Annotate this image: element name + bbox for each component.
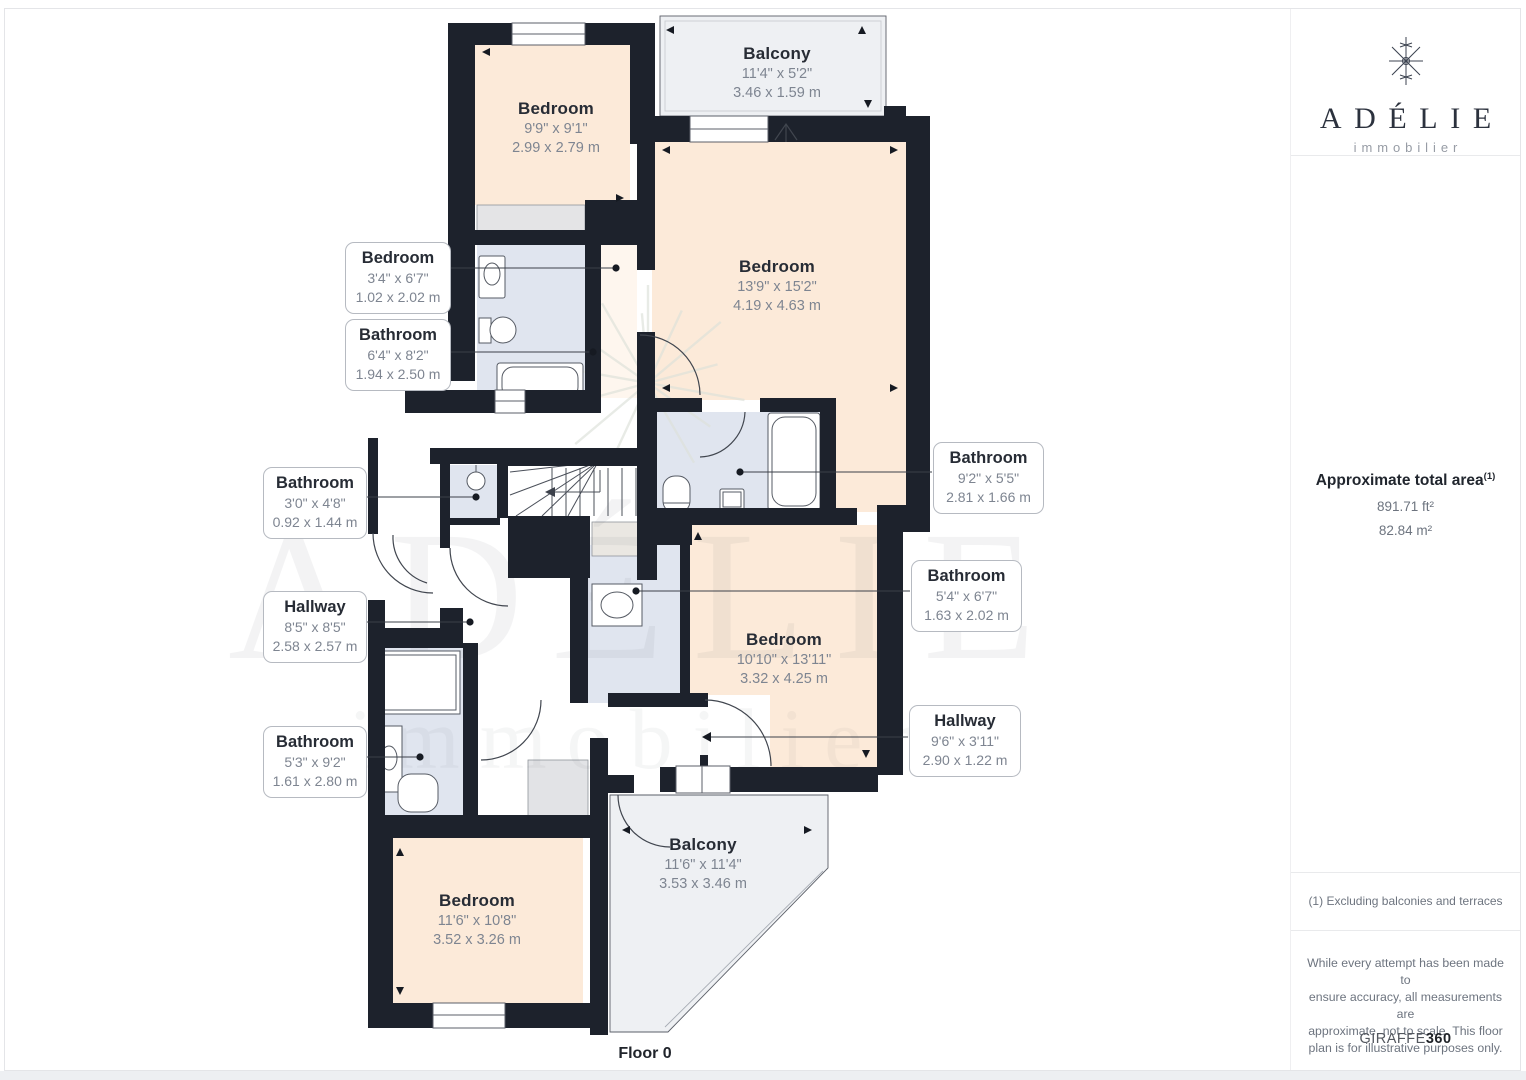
callout-dims-metric: 1.94 x 2.50 m <box>352 365 444 383</box>
callout-dims-metric: 2.81 x 1.66 m <box>940 488 1037 506</box>
callout-dims-metric: 2.90 x 1.22 m <box>916 751 1014 769</box>
floor-plan: ADÉLIE immobilier <box>0 0 1290 1080</box>
frame-top <box>4 8 1520 9</box>
callout-name: Bedroom <box>352 249 444 268</box>
callout-dims-imperial: 3'4" x 6'7" <box>352 269 444 287</box>
callout-hallway-85: Hallway 8'5" x 8'5" 2.58 x 2.57 m <box>263 591 367 663</box>
callout-dims-imperial: 5'3" x 9'2" <box>270 753 360 771</box>
callout-dims-imperial: 9'6" x 3'11" <box>916 732 1014 750</box>
total-area-block: Approximate total area(1) 891.71 ft² 82.… <box>1291 471 1520 538</box>
callout-name: Hallway <box>270 598 360 617</box>
callout-dims-metric: 1.61 x 2.80 m <box>270 772 360 790</box>
callout-dims-metric: 0.92 x 1.44 m <box>270 513 360 531</box>
callout-name: Bathroom <box>352 326 444 345</box>
sidebar-divider <box>1291 155 1520 156</box>
bottom-strip <box>0 1071 1526 1080</box>
callout-name: Bathroom <box>270 733 360 752</box>
snowflake-icon <box>1383 35 1429 87</box>
total-area-imperial: 891.71 ft² <box>1291 499 1520 514</box>
callout-hallway-96: Hallway 9'6" x 3'11" 2.90 x 1.22 m <box>909 705 1021 777</box>
callout-dims-metric: 1.02 x 2.02 m <box>352 288 444 306</box>
callout-dims-imperial: 3'0" x 4'8" <box>270 494 360 512</box>
info-sidebar: ADÉLIE immobilier Approximate total area… <box>1291 9 1520 1070</box>
callout-dims-imperial: 9'2" x 5'5" <box>940 469 1037 487</box>
floorplan-graphic: ADÉLIE immobilier <box>0 0 1290 1080</box>
callout-name: Bathroom <box>918 567 1015 586</box>
callout-dims-metric: 1.63 x 2.02 m <box>918 606 1015 624</box>
total-area-title-text: Approximate total area <box>1316 472 1484 489</box>
total-area-title: Approximate total area(1) <box>1291 471 1520 490</box>
giraffe360-name: GIRAFFE <box>1359 1031 1425 1047</box>
brand-name: ADÉLIE <box>1291 102 1520 136</box>
floor-label: Floor 0 <box>595 1045 695 1063</box>
footnote: (1) Excluding balconies and terraces <box>1291 894 1520 908</box>
total-area-metric: 82.84 m² <box>1291 523 1520 538</box>
giraffe360-suffix: 360 <box>1426 1031 1452 1047</box>
frame-left <box>4 8 5 1071</box>
callout-name: Bathroom <box>940 449 1037 468</box>
callout-name: Hallway <box>916 712 1014 731</box>
brand-block: ADÉLIE immobilier <box>1291 35 1520 155</box>
sidebar-divider <box>1291 872 1520 873</box>
callout-dims-imperial: 8'5" x 8'5" <box>270 618 360 636</box>
callout-dims-metric: 2.58 x 2.57 m <box>270 637 360 655</box>
sidebar-divider <box>1291 930 1520 931</box>
giraffe360-credit: GIRAFFE360 <box>1291 1031 1520 1047</box>
total-area-footnote-ref: (1) <box>1484 471 1496 482</box>
brand-tagline: immobilier <box>1291 140 1520 155</box>
callout-bathroom-54: Bathroom 5'4" x 6'7" 1.63 x 2.02 m <box>911 560 1022 632</box>
callout-bathroom-92: Bathroom 9'2" x 5'5" 2.81 x 1.66 m <box>933 442 1044 514</box>
callout-bathroom-64: Bathroom 6'4" x 8'2" 1.94 x 2.50 m <box>345 319 451 391</box>
callout-dims-imperial: 5'4" x 6'7" <box>918 587 1015 605</box>
callout-name: Bathroom <box>270 474 360 493</box>
callout-bathroom-53: Bathroom 5'3" x 9'2" 1.61 x 2.80 m <box>263 726 367 798</box>
callout-dims-imperial: 6'4" x 8'2" <box>352 346 444 364</box>
frame-right <box>1520 8 1521 1071</box>
callout-bathroom-30: Bathroom 3'0" x 4'8" 0.92 x 1.44 m <box>263 467 367 539</box>
callout-bedroom-small: Bedroom 3'4" x 6'7" 1.02 x 2.02 m <box>345 242 451 314</box>
